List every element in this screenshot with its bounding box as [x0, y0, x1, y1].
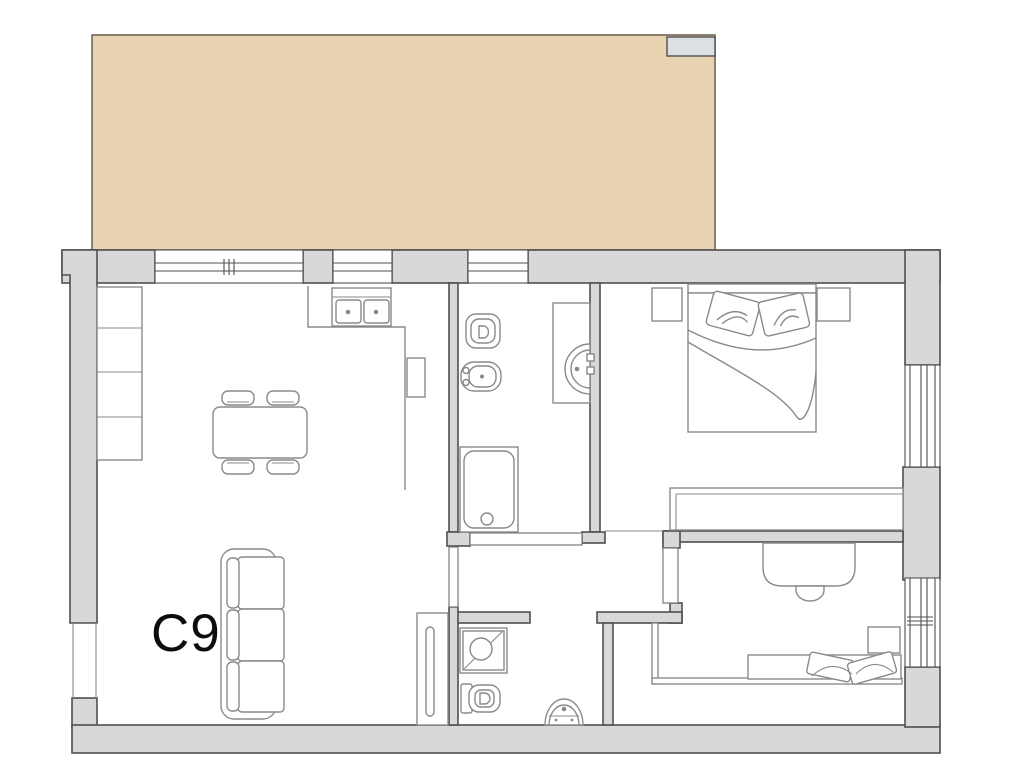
desk	[763, 543, 855, 586]
door-leaf-bedroom-2	[663, 548, 678, 603]
toilet-top	[466, 314, 500, 348]
opening-left-wall	[73, 623, 96, 698]
shower-bottom	[460, 628, 507, 673]
window-bedroom-2	[905, 578, 940, 667]
window-bedroom-1	[905, 365, 940, 467]
bidet	[461, 362, 501, 391]
dresser	[670, 488, 903, 530]
nightstand-left	[652, 288, 682, 321]
sofa	[221, 549, 284, 719]
nightstand-right	[817, 288, 850, 321]
nightstand-bedroom-2	[868, 627, 900, 653]
floor-plan: C9	[0, 0, 1024, 768]
terrace	[92, 35, 715, 250]
washbasin-bottom	[545, 699, 583, 725]
door-leaf-hall	[449, 547, 458, 607]
washbasin-top	[553, 303, 594, 403]
double-bed	[688, 284, 816, 432]
toilet-bottom	[461, 684, 500, 713]
terrace-notch	[667, 37, 715, 56]
window-kitchen	[333, 250, 392, 283]
shower-tray-top	[460, 447, 518, 532]
window-bathroom-top	[468, 250, 528, 283]
desk-chair	[796, 586, 824, 601]
door-bathroom-top	[470, 533, 582, 545]
kitchen-sink	[332, 288, 391, 326]
unit-label: C9	[151, 607, 221, 660]
kitchen-appliance	[407, 358, 425, 397]
hall-wardrobe	[417, 613, 448, 725]
cabinet-column	[97, 287, 142, 460]
dining-table	[213, 407, 307, 458]
window-living-terrace	[155, 250, 303, 283]
